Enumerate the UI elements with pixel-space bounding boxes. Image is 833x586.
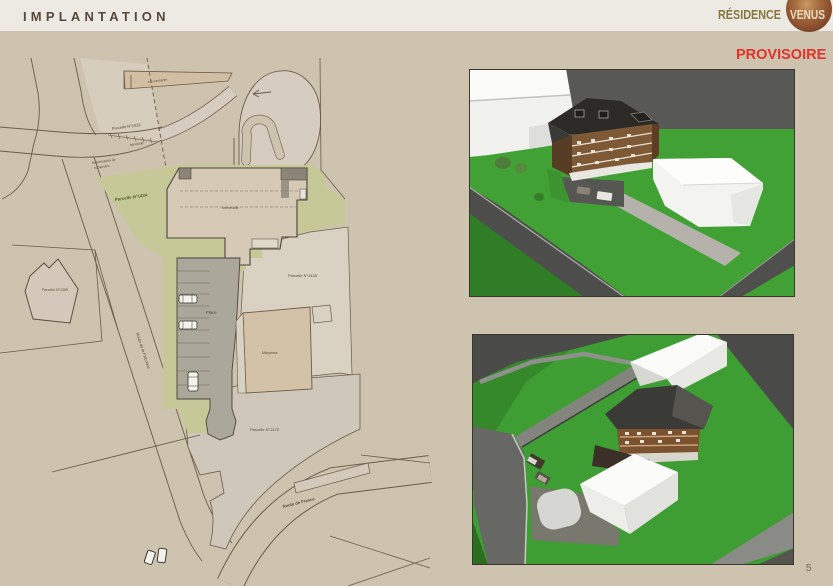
svg-text:VENUS: VENUS [790,7,825,22]
svg-text:Place: Place [206,310,217,315]
svg-text:servitude: servitude [130,141,144,147]
svg-text:Parcelle N°1470: Parcelle N°1470 [250,427,280,432]
svg-text:RÉSIDENCE: RÉSIDENCE [718,7,781,22]
svg-text:construire: construire [94,164,110,170]
svg-text:Parcelle N°1435: Parcelle N°1435 [288,273,318,278]
svg-text:Route de la Falconne: Route de la Falconne [135,332,152,370]
svg-text:Immeuble: Immeuble [222,206,239,210]
svg-text:Parcelle N°1059: Parcelle N°1059 [42,288,68,292]
svg-text:Mitoyenne: Mitoyenne [262,351,278,355]
